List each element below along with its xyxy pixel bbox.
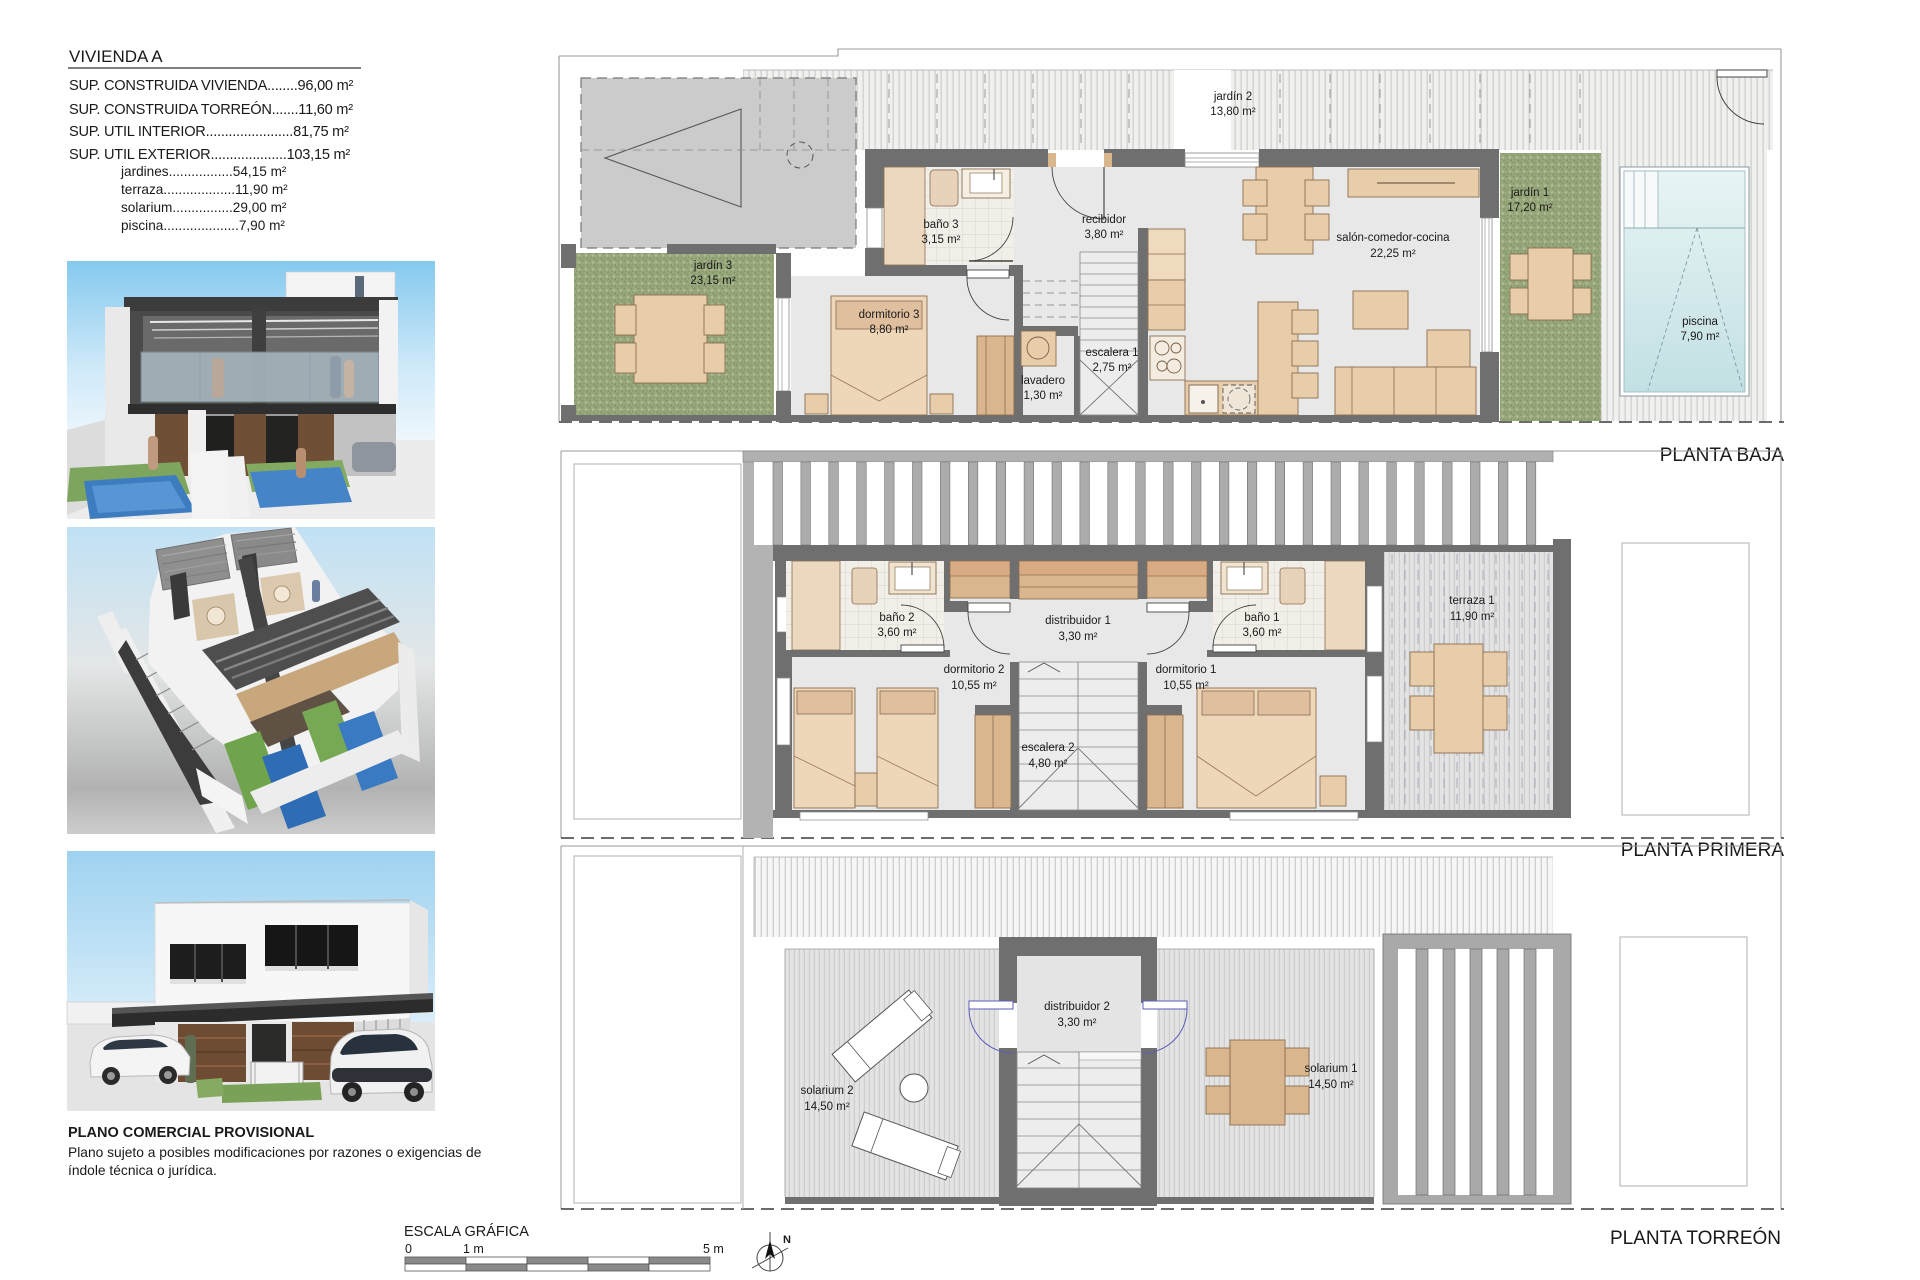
svg-text:piscina: piscina <box>1682 316 1718 328</box>
svg-text:escalera 2: escalera 2 <box>1021 742 1074 754</box>
svg-text:PLANTA TORREÓN: PLANTA TORREÓN <box>1610 1227 1781 1249</box>
svg-text:0: 0 <box>405 1242 412 1256</box>
svg-text:PLANO COMERCIAL PROVISIONAL: PLANO COMERCIAL PROVISIONAL <box>68 1125 314 1141</box>
svg-text:14,50 m²: 14,50 m² <box>804 1101 850 1113</box>
svg-text:3,30 m²: 3,30 m² <box>1059 631 1098 643</box>
svg-text:23,15 m²: 23,15 m² <box>690 275 736 287</box>
svg-text:recibidor: recibidor <box>1082 214 1126 226</box>
svg-text:1 m: 1 m <box>463 1242 484 1256</box>
svg-text:solarium 2: solarium 2 <box>800 1085 853 1097</box>
svg-text:4,80 m²: 4,80 m² <box>1029 758 1068 770</box>
svg-text:piscina....................7,9: piscina....................7,90 m² <box>121 218 285 233</box>
svg-text:N: N <box>783 1234 791 1246</box>
svg-text:3,60 m²: 3,60 m² <box>878 627 917 639</box>
svg-text:VIVIENDA A: VIVIENDA A <box>69 47 163 66</box>
svg-text:distribuidor 1: distribuidor 1 <box>1045 615 1111 627</box>
svg-text:SUP. UTIL INTERIOR............: SUP. UTIL INTERIOR......................… <box>69 124 349 140</box>
svg-text:3,60 m²: 3,60 m² <box>1243 627 1282 639</box>
svg-text:11,90 m²: 11,90 m² <box>1450 611 1495 623</box>
svg-text:2,75 m²: 2,75 m² <box>1093 362 1132 374</box>
svg-text:3,30 m²: 3,30 m² <box>1058 1017 1097 1029</box>
svg-text:SUP. UTIL EXTERIOR............: SUP. UTIL EXTERIOR....................10… <box>69 147 350 163</box>
svg-text:baño 3: baño 3 <box>923 219 958 231</box>
svg-text:3,80 m²: 3,80 m² <box>1085 229 1124 241</box>
svg-text:distribuidor 2: distribuidor 2 <box>1044 1001 1110 1013</box>
svg-text:PLANTA PRIMERA: PLANTA PRIMERA <box>1621 840 1785 861</box>
svg-text:PLANTA BAJA: PLANTA BAJA <box>1660 445 1785 466</box>
svg-text:22,25 m²: 22,25 m² <box>1370 248 1416 260</box>
svg-text:jardín 2: jardín 2 <box>1213 91 1252 103</box>
svg-text:14,50 m²: 14,50 m² <box>1308 1079 1354 1091</box>
svg-text:3,15 m²: 3,15 m² <box>922 234 961 246</box>
svg-text:SUP. CONSTRUIDA VIVIENDA......: SUP. CONSTRUIDA VIVIENDA........96,00 m² <box>69 78 354 94</box>
svg-text:SUP. CONSTRUIDA TORREÓN.......: SUP. CONSTRUIDA TORREÓN.......11,60 m² <box>69 101 353 118</box>
svg-text:10,55 m²: 10,55 m² <box>1163 680 1209 692</box>
svg-text:5 m: 5 m <box>703 1242 724 1256</box>
svg-text:Plano sujeto a posibles modifi: Plano sujeto a posibles modificaciones p… <box>68 1145 482 1160</box>
svg-text:escalera 1: escalera 1 <box>1085 347 1138 359</box>
svg-text:terraza 1: terraza 1 <box>1449 595 1494 607</box>
svg-text:baño 1: baño 1 <box>1244 612 1279 624</box>
svg-text:dormitorio 3: dormitorio 3 <box>859 309 920 321</box>
svg-text:jardín 3: jardín 3 <box>693 260 732 272</box>
svg-text:lavadero: lavadero <box>1021 375 1065 387</box>
svg-text:salón-comedor-cocina: salón-comedor-cocina <box>1336 232 1450 244</box>
svg-text:13,80 m²: 13,80 m² <box>1210 106 1256 118</box>
svg-text:jardines.................54,15: jardines.................54,15 m² <box>120 164 287 179</box>
svg-text:7,90 m²: 7,90 m² <box>1681 331 1720 343</box>
svg-text:solarium................29,00: solarium................29,00 m² <box>121 200 287 215</box>
svg-text:solarium 1: solarium 1 <box>1304 1063 1357 1075</box>
svg-text:baño 2: baño 2 <box>879 612 914 624</box>
svg-text:10,55 m²: 10,55 m² <box>951 680 997 692</box>
svg-text:jardín 1: jardín 1 <box>1510 187 1549 199</box>
svg-text:dormitorio 2: dormitorio 2 <box>944 664 1005 676</box>
svg-text:1,30 m²: 1,30 m² <box>1024 390 1063 402</box>
svg-text:ESCALA GRÁFICA: ESCALA GRÁFICA <box>404 1223 529 1240</box>
svg-text:17,20 m²: 17,20 m² <box>1507 202 1553 214</box>
svg-text:dormitorio 1: dormitorio 1 <box>1156 664 1217 676</box>
svg-text:8,80 m²: 8,80 m² <box>870 324 909 336</box>
svg-text:índole técnica o jurídica.: índole técnica o jurídica. <box>68 1163 217 1178</box>
svg-text:terraza...................11,9: terraza...................11,90 m² <box>121 182 288 197</box>
